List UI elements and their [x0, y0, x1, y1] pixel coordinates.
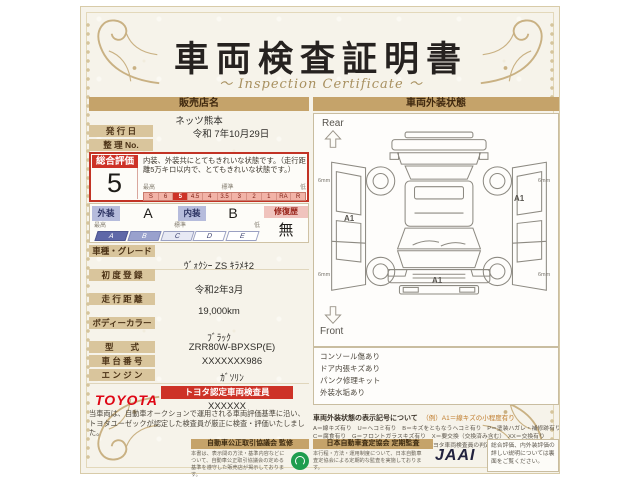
- legend-example: （例）A1＝線キズの小程度有り: [422, 415, 514, 422]
- condition-scale-cell-e: E: [226, 231, 260, 241]
- rating-scale-cell: 1: [261, 193, 276, 200]
- condition-scale-cell-d: D: [193, 231, 227, 241]
- jaai-text: 本行程・方法・運用制度について、日本自動車査定協会による定期的な監査を実施してお…: [313, 451, 425, 472]
- spec-label-mileage: 走 行 距 離: [89, 293, 155, 305]
- jaai-stamp: 日本自動車査定協会 定期監査 本行程・方法・運用制度について、日本自動車査定協会…: [313, 439, 483, 472]
- spec-label-model-grade: 車種・グレード: [89, 245, 155, 257]
- condition-scale-low: 低: [254, 223, 260, 230]
- page-subtitle: Inspection Certificate: [238, 77, 403, 92]
- condition-scale-mid: 標準: [174, 223, 186, 230]
- certificate-page: 車両検査証明書 ～ Inspection Certificate ～ 販売店名 …: [0, 0, 640, 480]
- rating-scale: S 6 5 4.5 4 3.5 3 2 1 RA R: [143, 192, 306, 201]
- rating-scale-cell-selected: 5: [172, 193, 187, 200]
- condition-scale-labels: 最高 標準 低: [94, 223, 260, 230]
- tire-depth-front-left: 6mm: [318, 272, 330, 278]
- note-item: コンソール傷あり: [320, 351, 552, 363]
- spec-value-model-code: ZRR80W-BPXSP(E): [155, 342, 309, 353]
- car-diagram: [326, 128, 552, 332]
- tire-depth-rear-left: 6mm: [318, 178, 330, 184]
- interior-grade: B: [206, 206, 260, 221]
- condition-scale-cell-a: A: [94, 231, 128, 241]
- page-subtitle-row: ～ Inspection Certificate ～: [81, 73, 561, 92]
- rating-scale-cell: 4: [202, 193, 217, 200]
- note-item: ドア内張キズあり: [320, 363, 552, 375]
- condition-scale-high: 最高: [94, 223, 106, 230]
- condition-scale: A B C D E: [96, 231, 260, 241]
- disclaimer-text: 当車両は、自動車オークションで運用される車両評価基準に沿い、トヨタユーゼックが認…: [89, 409, 311, 438]
- damage-mark-front: A1: [432, 276, 442, 285]
- ref-no-label: 整 理 No.: [89, 139, 153, 151]
- rating-description: 内装、外装共にとてもきれいな状態です。（走行距離5万キロ以内で、とてもきれいな状…: [143, 156, 306, 175]
- jaai-header: 日本自動車査定協会 定期監査: [313, 439, 433, 449]
- spec-label-model-code: 型 式: [89, 341, 155, 353]
- condition-scale-cell-b: B: [127, 231, 161, 241]
- spec-value-chassis-number: XXXXXXX986: [155, 356, 309, 367]
- legend-title: 車両外装状態の表示記号について: [313, 415, 418, 422]
- rating-scale-cell: R: [290, 193, 305, 200]
- exterior-grade: A: [120, 206, 176, 221]
- inspector-band: トヨタ認定車両検査員: [161, 386, 293, 399]
- repair-history-label: 修復歴: [264, 206, 308, 218]
- rating-scale-cell: S: [144, 193, 158, 200]
- note-item: 外装水垢あり: [320, 387, 552, 399]
- backside-note: 総合評価、内外装評価の詳しい説明については裏面をご覧ください。: [491, 442, 555, 466]
- rating-scale-cell: 4.5: [187, 193, 202, 200]
- interior-label: 内装: [178, 206, 206, 221]
- spec-label-body-color: ボディーカラー: [89, 317, 155, 329]
- certificate: 車両検査証明書 ～ Inspection Certificate ～ 販売店名 …: [80, 6, 560, 474]
- subtitle-ornament-left: ～: [219, 77, 233, 92]
- tire-depth-front-right: 6mm: [538, 272, 550, 278]
- inspector-section: TOYOTA トヨタ認定車両検査員 XXXXXX: [89, 383, 309, 411]
- legend-line: A＝線キズ有り U＝ヘコミ有り B＝キズをともなうヘコミ有り P＝塗装ハガレ・補…: [313, 425, 559, 433]
- rating-scale-cell: 2: [246, 193, 261, 200]
- rating-scale-cell: 3: [231, 193, 246, 200]
- condition-box: 外装 A 内装 B 最高 標準 低 A B C D E 修復歴 無: [89, 203, 309, 243]
- backside-note-box: 総合評価、内外装評価の詳しい説明については裏面をご覧ください。: [487, 439, 559, 472]
- subtitle-ornament-right: ～: [409, 77, 423, 92]
- overall-rating-box: 総合評価 5 内装、外装共にとてもきれいな状態です。（走行距離5万キロ以内で、と…: [89, 152, 309, 202]
- rating-scale-high: 最高: [143, 185, 155, 192]
- exterior-panel-header: 車両外装状態: [313, 97, 559, 111]
- spec-value-mileage: 19,000km: [129, 306, 309, 317]
- damage-mark-right: A1: [514, 194, 524, 203]
- fair-trade-text: 本書は、表示間の方法・基準内容などについて、自動車公正取引協議会の定める基準を遵…: [191, 451, 287, 479]
- overall-rating-value: 5: [92, 168, 138, 199]
- spec-label-chassis-number: 車 台 番 号: [89, 355, 155, 367]
- issue-date-value: 令和 7年10月29日: [153, 126, 309, 140]
- dealer-header: 販売店名: [89, 97, 309, 111]
- note-item: パンク修理キット: [320, 375, 552, 387]
- legend-box: 車両外装状態の表示記号について （例）A1＝線キズの小程度有り A＝線キズ有り …: [313, 407, 559, 439]
- rating-scale-labels: 最高 標準 低: [143, 185, 306, 192]
- rating-scale-low: 低: [300, 185, 306, 192]
- fair-trade-logo-icon: [291, 452, 309, 470]
- spec-value-first-registration: 令和2年3月: [129, 282, 309, 296]
- fair-trade-stamp: 自動車公正取引協議会 監修 本書は、表示間の方法・基準内容などについて、自動車公…: [191, 439, 309, 472]
- exterior-label: 外装: [92, 206, 120, 221]
- condition-notes-box: コンソール傷あり ドア内張キズあり パンク修理キット 外装水垢あり: [313, 347, 559, 405]
- spec-label-engine: エ ン ジ ン: [89, 369, 155, 381]
- jaai-logo: JAAI: [435, 447, 475, 465]
- rating-scale-cell: RA: [276, 193, 291, 200]
- spec-value-engine: ｶﾞｿﾘﾝ: [155, 370, 309, 384]
- repair-history-value: 無: [264, 220, 308, 242]
- car-diagram-box: Rear Front: [313, 113, 559, 347]
- condition-scale-cell-c: C: [160, 231, 194, 241]
- issue-date-label: 発 行 日: [89, 125, 153, 137]
- damage-mark-left: A1: [344, 214, 354, 223]
- rating-scale-cell: 3.5: [217, 193, 232, 200]
- toyota-logo: TOYOTA: [95, 392, 158, 408]
- fair-trade-header: 自動車公正取引協議会 監修: [191, 439, 309, 449]
- overall-rating-label: 総合評価: [92, 155, 138, 168]
- spec-label-first-registration: 初 度 登 録: [89, 269, 155, 281]
- rating-scale-mid: 標準: [221, 185, 233, 192]
- rating-scale-cell: 6: [158, 193, 173, 200]
- tire-depth-rear-right: 6mm: [538, 178, 550, 184]
